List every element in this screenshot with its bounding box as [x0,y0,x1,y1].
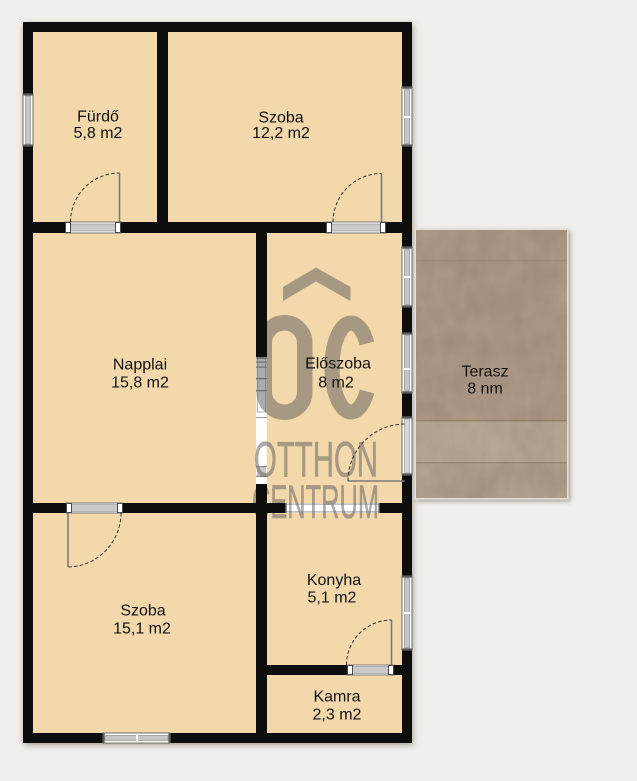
svg-text:Fürdő: Fürdő [77,109,119,126]
svg-text:12,2 m2: 12,2 m2 [252,125,310,142]
svg-text:Terasz: Terasz [461,364,508,381]
svg-text:5,1 m2: 5,1 m2 [308,590,357,607]
svg-text:Napplai: Napplai [113,357,167,374]
svg-text:Szoba: Szoba [258,110,303,127]
svg-text:8 m2: 8 m2 [318,375,354,392]
svg-text:Kamra: Kamra [313,689,360,706]
svg-text:Szoba: Szoba [120,603,165,620]
svg-text:8 nm: 8 nm [467,381,503,398]
svg-text:Előszoba: Előszoba [305,356,371,373]
svg-text:15,1 m2: 15,1 m2 [113,621,171,638]
svg-text:2,3 m2: 2,3 m2 [313,707,362,724]
svg-text:15,8 m2: 15,8 m2 [111,375,169,392]
svg-text:5,8 m2: 5,8 m2 [74,125,123,142]
svg-text:Konyha: Konyha [307,572,361,589]
svg-text:CENTRUM: CENTRUM [252,475,379,528]
